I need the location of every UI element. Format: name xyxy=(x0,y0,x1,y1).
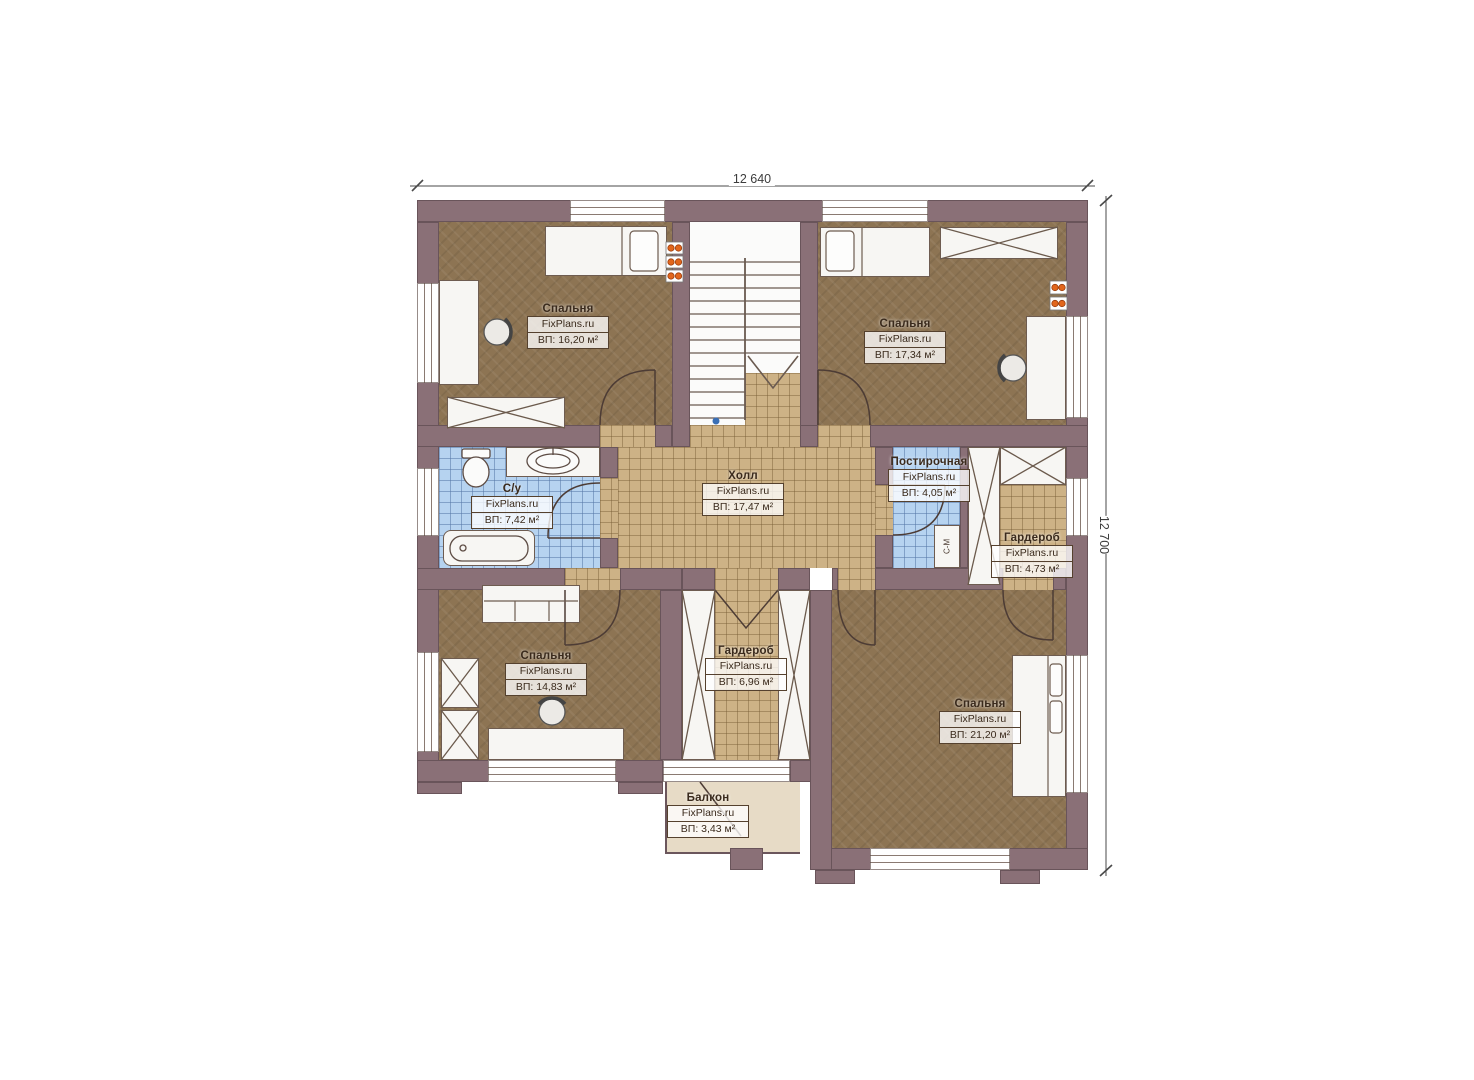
wall-mid-left-end xyxy=(655,425,672,447)
dimension-right-value: 12 700 xyxy=(1097,516,1111,554)
wall-bath-right-a xyxy=(600,447,618,478)
wall-bath-right-b xyxy=(600,538,618,568)
room-label-bathroom: С/у FixPlans.ru ВП: 7,42 м² xyxy=(471,483,553,529)
brand-stamp: FixPlans.ru xyxy=(667,805,749,822)
door-threshold xyxy=(600,478,618,538)
cabinet xyxy=(1000,447,1066,485)
room-label-hall: Холл FixPlans.ru ВП: 17,47 м² xyxy=(702,470,784,516)
dimension-top-value: 12 640 xyxy=(733,172,771,186)
brand-stamp: FixPlans.ru xyxy=(939,711,1021,728)
brand-stamp: FixPlans.ru xyxy=(888,469,970,486)
desk xyxy=(488,728,624,760)
wall-stub xyxy=(815,870,855,884)
wardrobe xyxy=(447,397,565,428)
room-title: Холл xyxy=(702,470,784,482)
wall-laundry-left-b xyxy=(875,535,893,568)
window xyxy=(417,468,439,536)
bed xyxy=(820,227,930,277)
brand-stamp: FixPlans.ru xyxy=(471,496,553,513)
room-label-bedroom-br: Спальня FixPlans.ru ВП: 21,20 м² xyxy=(939,698,1021,744)
bathroom-counter xyxy=(506,447,600,477)
dimension-right: 12 700 xyxy=(1093,516,1115,554)
dimension-top: 12 640 xyxy=(729,172,775,186)
wall-low-b2 xyxy=(778,568,810,590)
brand-stamp: FixPlans.ru xyxy=(702,483,784,500)
desk xyxy=(1026,316,1066,420)
room-area: ВП: 17,47 м² xyxy=(702,499,784,516)
stair-landing-floor xyxy=(745,373,800,425)
wall-stair-right xyxy=(800,222,818,447)
room-area: ВП: 4,05 м² xyxy=(888,485,970,502)
brand-stamp: FixPlans.ru xyxy=(705,658,787,675)
wall-mid-right xyxy=(870,425,1088,447)
window xyxy=(570,200,665,222)
room-area: ВП: 16,20 м² xyxy=(527,332,609,349)
room-area: ВП: 14,83 м² xyxy=(505,679,587,696)
brand-stamp: FixPlans.ru xyxy=(864,331,946,348)
bed xyxy=(545,226,667,276)
wall-stair-left xyxy=(672,222,690,447)
stair-hall-strip xyxy=(690,425,800,447)
wall-low-b1 xyxy=(682,568,715,590)
room-area: ВП: 4,73 м² xyxy=(991,561,1073,578)
room-title: Спальня xyxy=(505,650,587,662)
window xyxy=(1066,478,1088,536)
room-area: ВП: 3,43 м² xyxy=(667,821,749,838)
window xyxy=(417,283,439,383)
wall-mid-left xyxy=(417,425,600,447)
floor-plan: С-М xyxy=(0,0,1474,1080)
door-threshold xyxy=(818,425,870,447)
wall-mid-right-start xyxy=(800,425,818,447)
room-label-laundry: Постирочная FixPlans.ru ВП: 4,05 м² xyxy=(888,456,970,502)
room-area: ВП: 21,20 м² xyxy=(939,727,1021,744)
room-title: С/у xyxy=(471,483,553,495)
wall-stub xyxy=(1000,870,1040,884)
room-label-wardrobe-center: Гардероб FixPlans.ru ВП: 6,96 м² xyxy=(705,645,787,691)
window xyxy=(417,652,439,752)
room-title: Спальня xyxy=(864,318,946,330)
brand-stamp: FixPlans.ru xyxy=(527,316,609,333)
washing-machine-label: С-М xyxy=(943,539,952,554)
brand-stamp: FixPlans.ru xyxy=(991,545,1073,562)
room-label-bedroom-tl: Спальня FixPlans.ru ВП: 16,20 м² xyxy=(527,303,609,349)
room-title: Спальня xyxy=(939,698,1021,710)
wall-bedroom-br-left xyxy=(810,590,832,870)
room-title: Гардероб xyxy=(991,532,1073,544)
balcony-door xyxy=(663,760,790,782)
washing-machine: С-М xyxy=(934,525,960,568)
wall-low-c1 xyxy=(832,568,838,590)
room-label-bedroom-bl: Спальня FixPlans.ru ВП: 14,83 м² xyxy=(505,650,587,696)
room-title: Постирочная xyxy=(888,456,970,468)
wall-stub xyxy=(417,782,462,794)
window xyxy=(870,848,1010,870)
room-title: Балкон xyxy=(667,792,749,804)
bathtub xyxy=(443,530,535,566)
wall-low-a2 xyxy=(620,568,682,590)
room-area: ВП: 17,34 м² xyxy=(864,347,946,364)
wall-stub xyxy=(618,782,663,794)
room-title: Спальня xyxy=(527,303,609,315)
room-label-bedroom-tr: Спальня FixPlans.ru ВП: 17,34 м² xyxy=(864,318,946,364)
wardrobe xyxy=(441,658,479,708)
wall-stub xyxy=(730,848,763,870)
wall-closet-left xyxy=(660,590,682,760)
wardrobe xyxy=(441,710,479,760)
room-title: Гардероб xyxy=(705,645,787,657)
sofa xyxy=(482,585,580,623)
desk xyxy=(439,280,479,385)
wardrobe xyxy=(940,227,1058,259)
wall-outer-top xyxy=(417,200,1088,222)
room-area: ВП: 7,42 м² xyxy=(471,512,553,529)
window xyxy=(1066,316,1088,418)
room-area: ВП: 6,96 м² xyxy=(705,674,787,691)
door-threshold xyxy=(600,425,655,447)
window xyxy=(488,760,616,782)
door-threshold xyxy=(715,568,778,590)
window xyxy=(1066,655,1088,793)
door-threshold xyxy=(838,568,875,590)
room-label-wardrobe-right: Гардероб FixPlans.ru ВП: 4,73 м² xyxy=(991,532,1073,578)
room-label-balcony: Балкон FixPlans.ru ВП: 3,43 м² xyxy=(667,792,749,838)
brand-stamp: FixPlans.ru xyxy=(505,663,587,680)
window xyxy=(822,200,928,222)
